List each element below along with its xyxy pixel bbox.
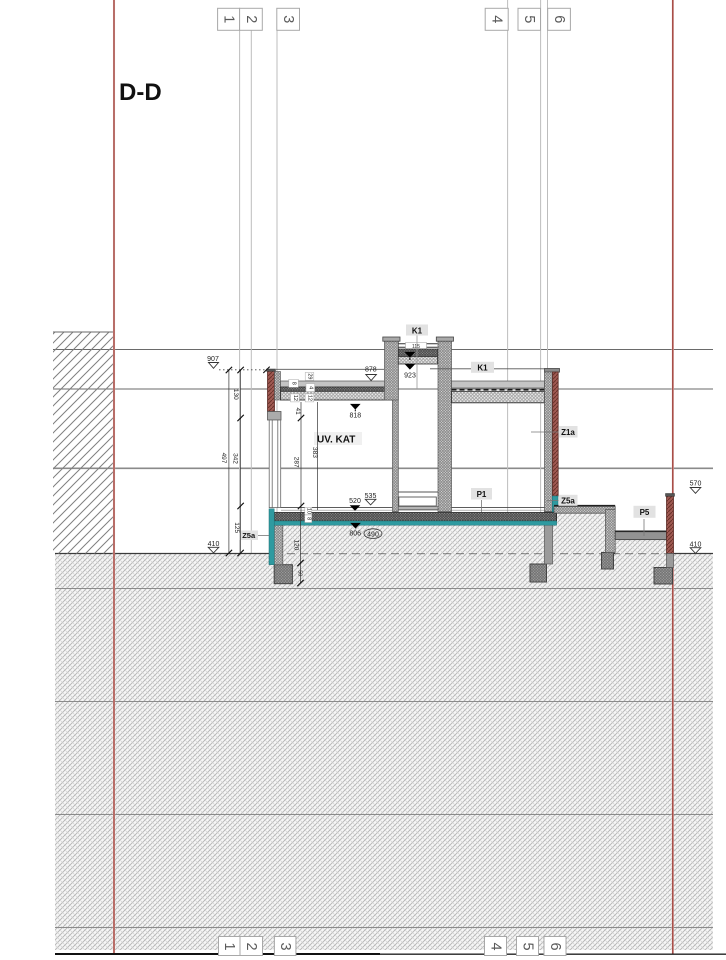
- svg-text:818: 818: [349, 412, 361, 419]
- svg-text:1: 1: [221, 15, 237, 23]
- svg-text:1: 1: [221, 942, 237, 950]
- svg-text:342: 342: [232, 453, 239, 464]
- svg-text:D-D: D-D: [119, 79, 162, 106]
- svg-text:6: 6: [547, 942, 563, 950]
- svg-text:5: 5: [521, 15, 537, 23]
- svg-text:125: 125: [233, 522, 240, 533]
- svg-text:130: 130: [232, 389, 239, 400]
- svg-text:50: 50: [297, 570, 303, 576]
- svg-text:UV. KAT: UV. KAT: [317, 435, 355, 446]
- svg-text:8: 8: [305, 517, 311, 520]
- svg-text:490: 490: [367, 531, 379, 538]
- svg-text:878: 878: [365, 367, 377, 374]
- svg-text:120: 120: [292, 540, 299, 551]
- svg-text:K1: K1: [477, 364, 488, 373]
- svg-text:3: 3: [280, 15, 296, 23]
- svg-text:287: 287: [292, 457, 299, 468]
- svg-text:2: 2: [243, 15, 259, 23]
- svg-text:Z1a: Z1a: [561, 428, 575, 437]
- svg-text:570: 570: [690, 481, 702, 488]
- svg-text:Z5a: Z5a: [561, 496, 575, 505]
- svg-text:10: 10: [305, 508, 311, 514]
- svg-text:12: 12: [292, 395, 298, 401]
- svg-text:29: 29: [307, 373, 313, 379]
- svg-text:806: 806: [349, 531, 361, 538]
- svg-text:Z5a: Z5a: [242, 531, 256, 540]
- svg-text:907: 907: [207, 356, 219, 363]
- svg-text:8: 8: [291, 382, 297, 385]
- svg-text:923: 923: [404, 373, 416, 380]
- svg-text:5: 5: [520, 942, 536, 950]
- svg-text:K1: K1: [412, 326, 423, 335]
- svg-text:12: 12: [307, 395, 313, 401]
- svg-text:4: 4: [488, 942, 504, 950]
- svg-text:520: 520: [349, 498, 361, 505]
- svg-text:P1: P1: [477, 490, 487, 499]
- svg-text:41: 41: [294, 407, 301, 415]
- svg-text:4: 4: [307, 386, 313, 389]
- svg-text:6: 6: [551, 15, 567, 23]
- svg-text:4: 4: [489, 15, 505, 23]
- svg-text:383: 383: [311, 447, 318, 458]
- svg-text:2: 2: [243, 942, 259, 950]
- svg-text:P5: P5: [640, 508, 650, 517]
- svg-text:3: 3: [277, 942, 293, 950]
- svg-text:497: 497: [220, 453, 227, 464]
